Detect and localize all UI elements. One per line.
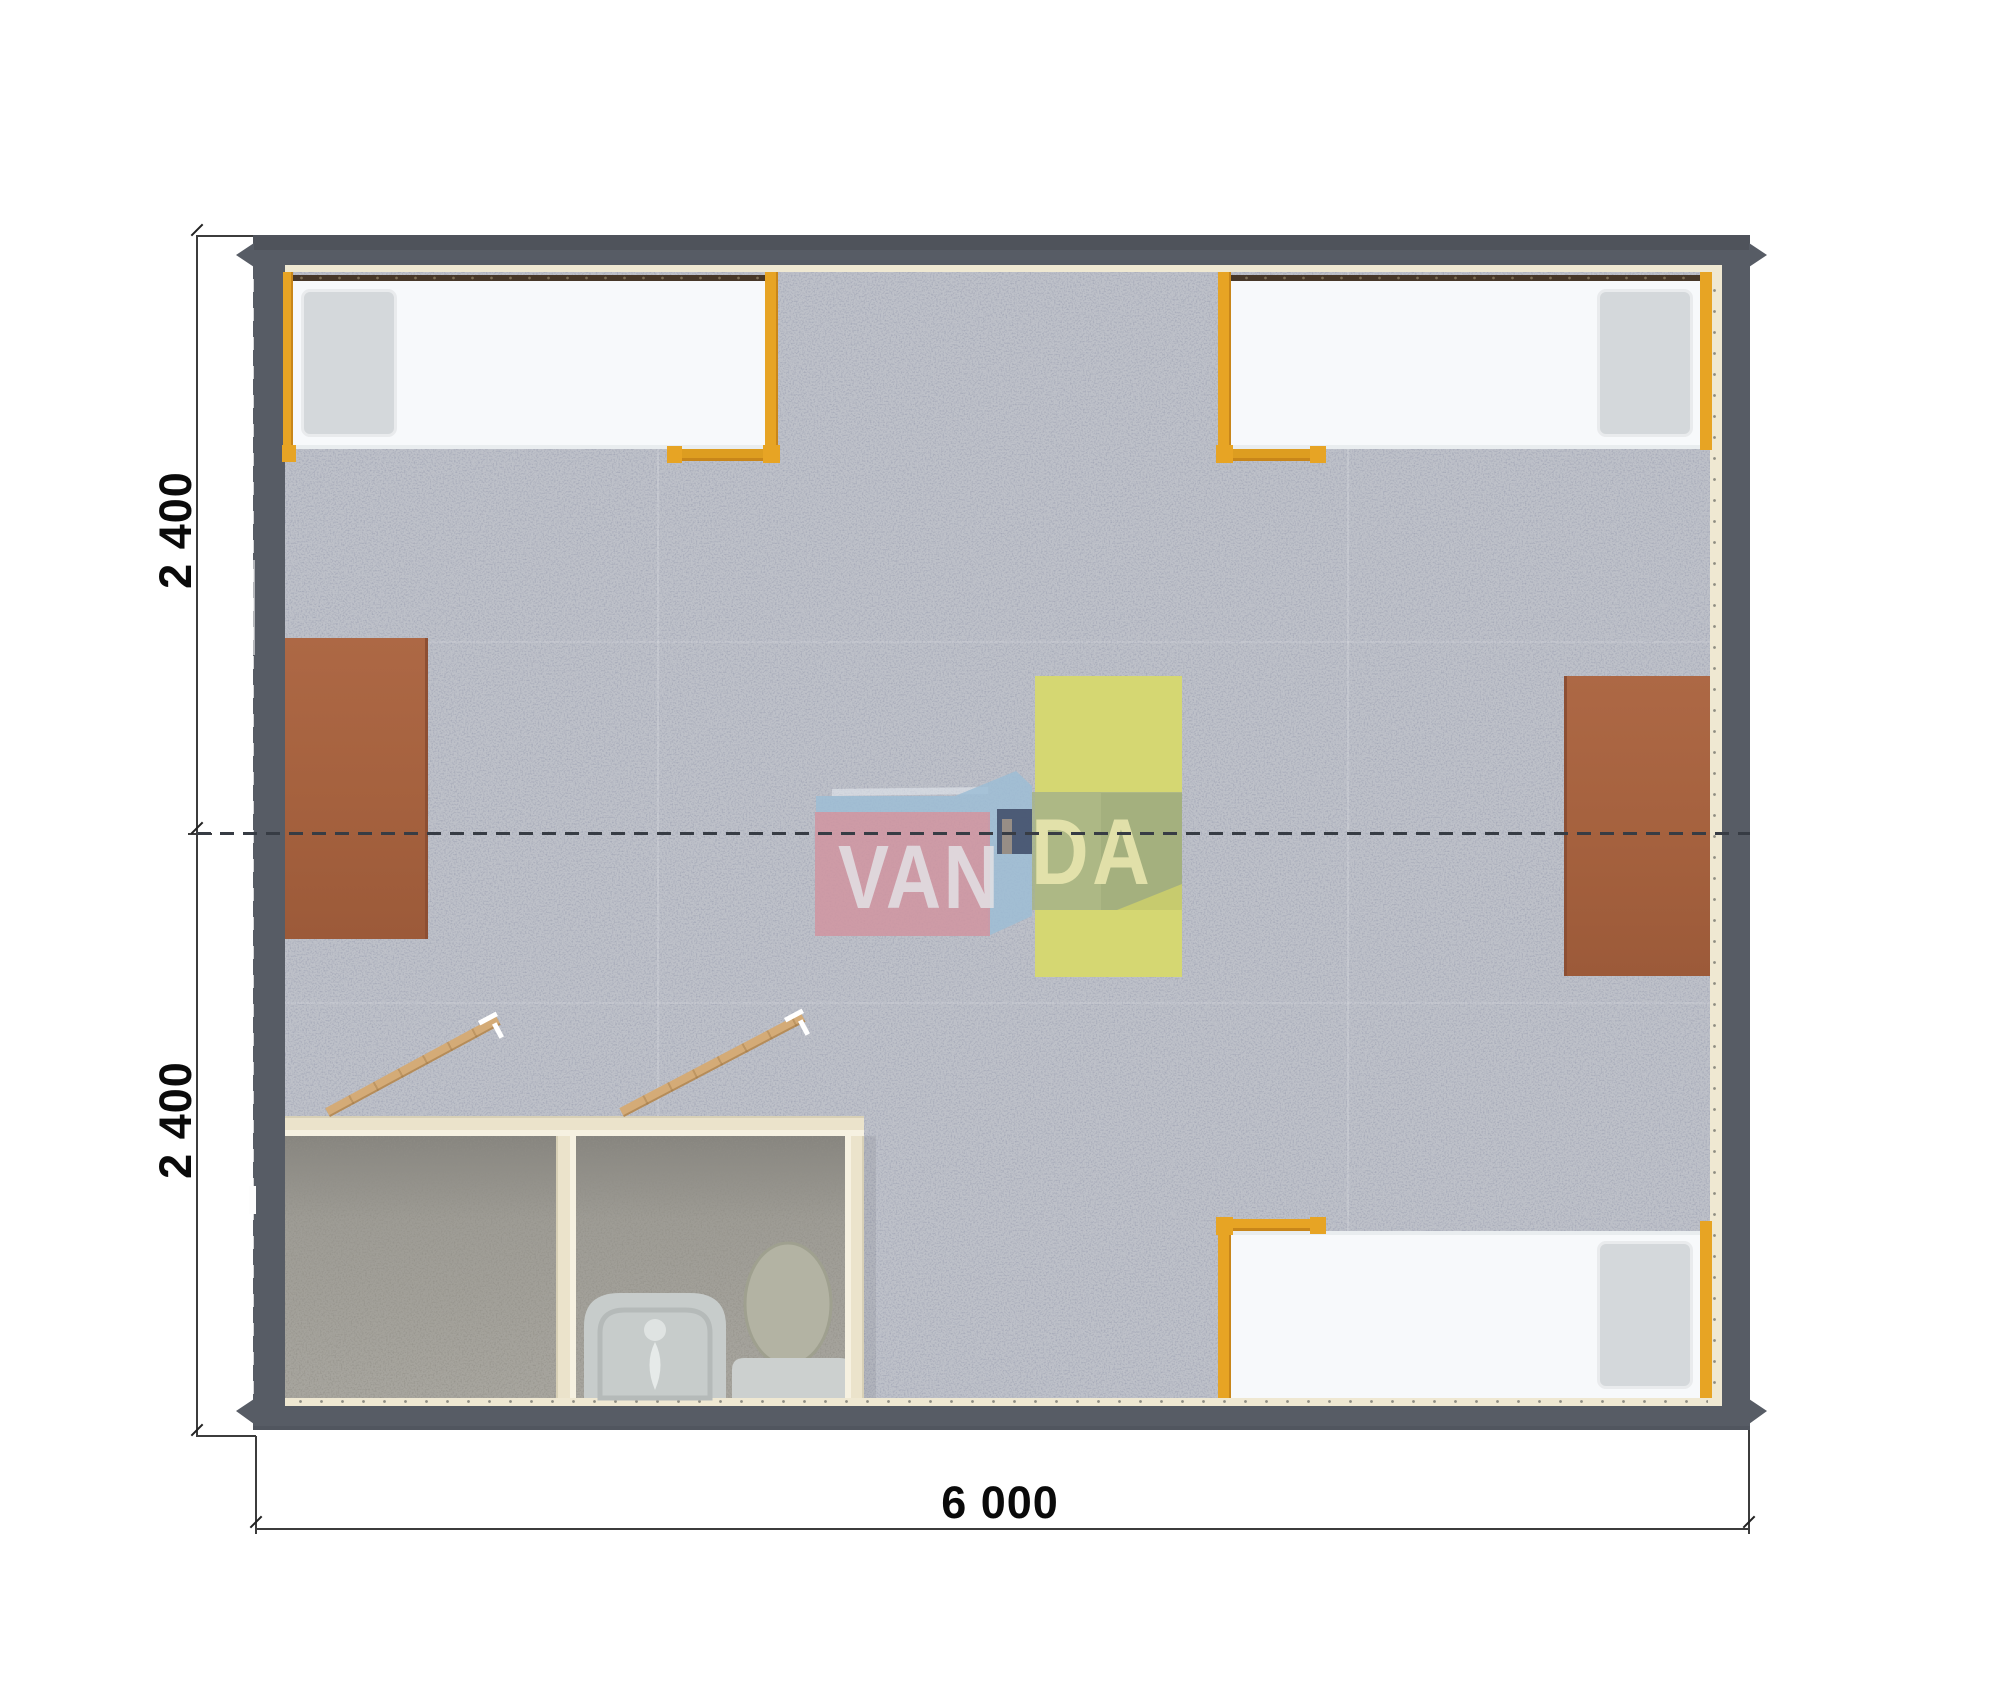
svg-text:DA: DA	[1031, 800, 1153, 905]
svg-text:VAN: VAN	[838, 826, 1001, 927]
